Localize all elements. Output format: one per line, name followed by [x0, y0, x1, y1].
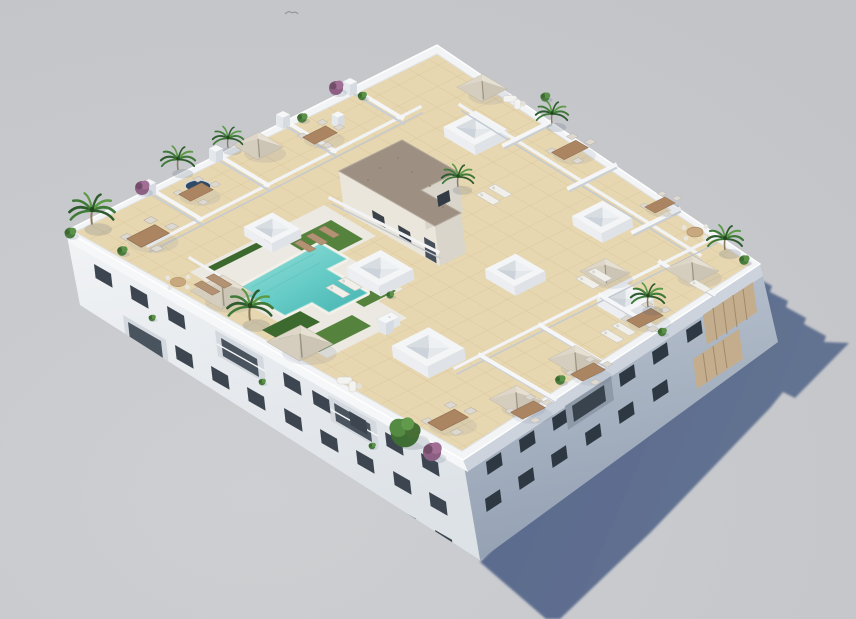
aerial-render — [0, 0, 856, 619]
render-canvas — [0, 0, 856, 619]
